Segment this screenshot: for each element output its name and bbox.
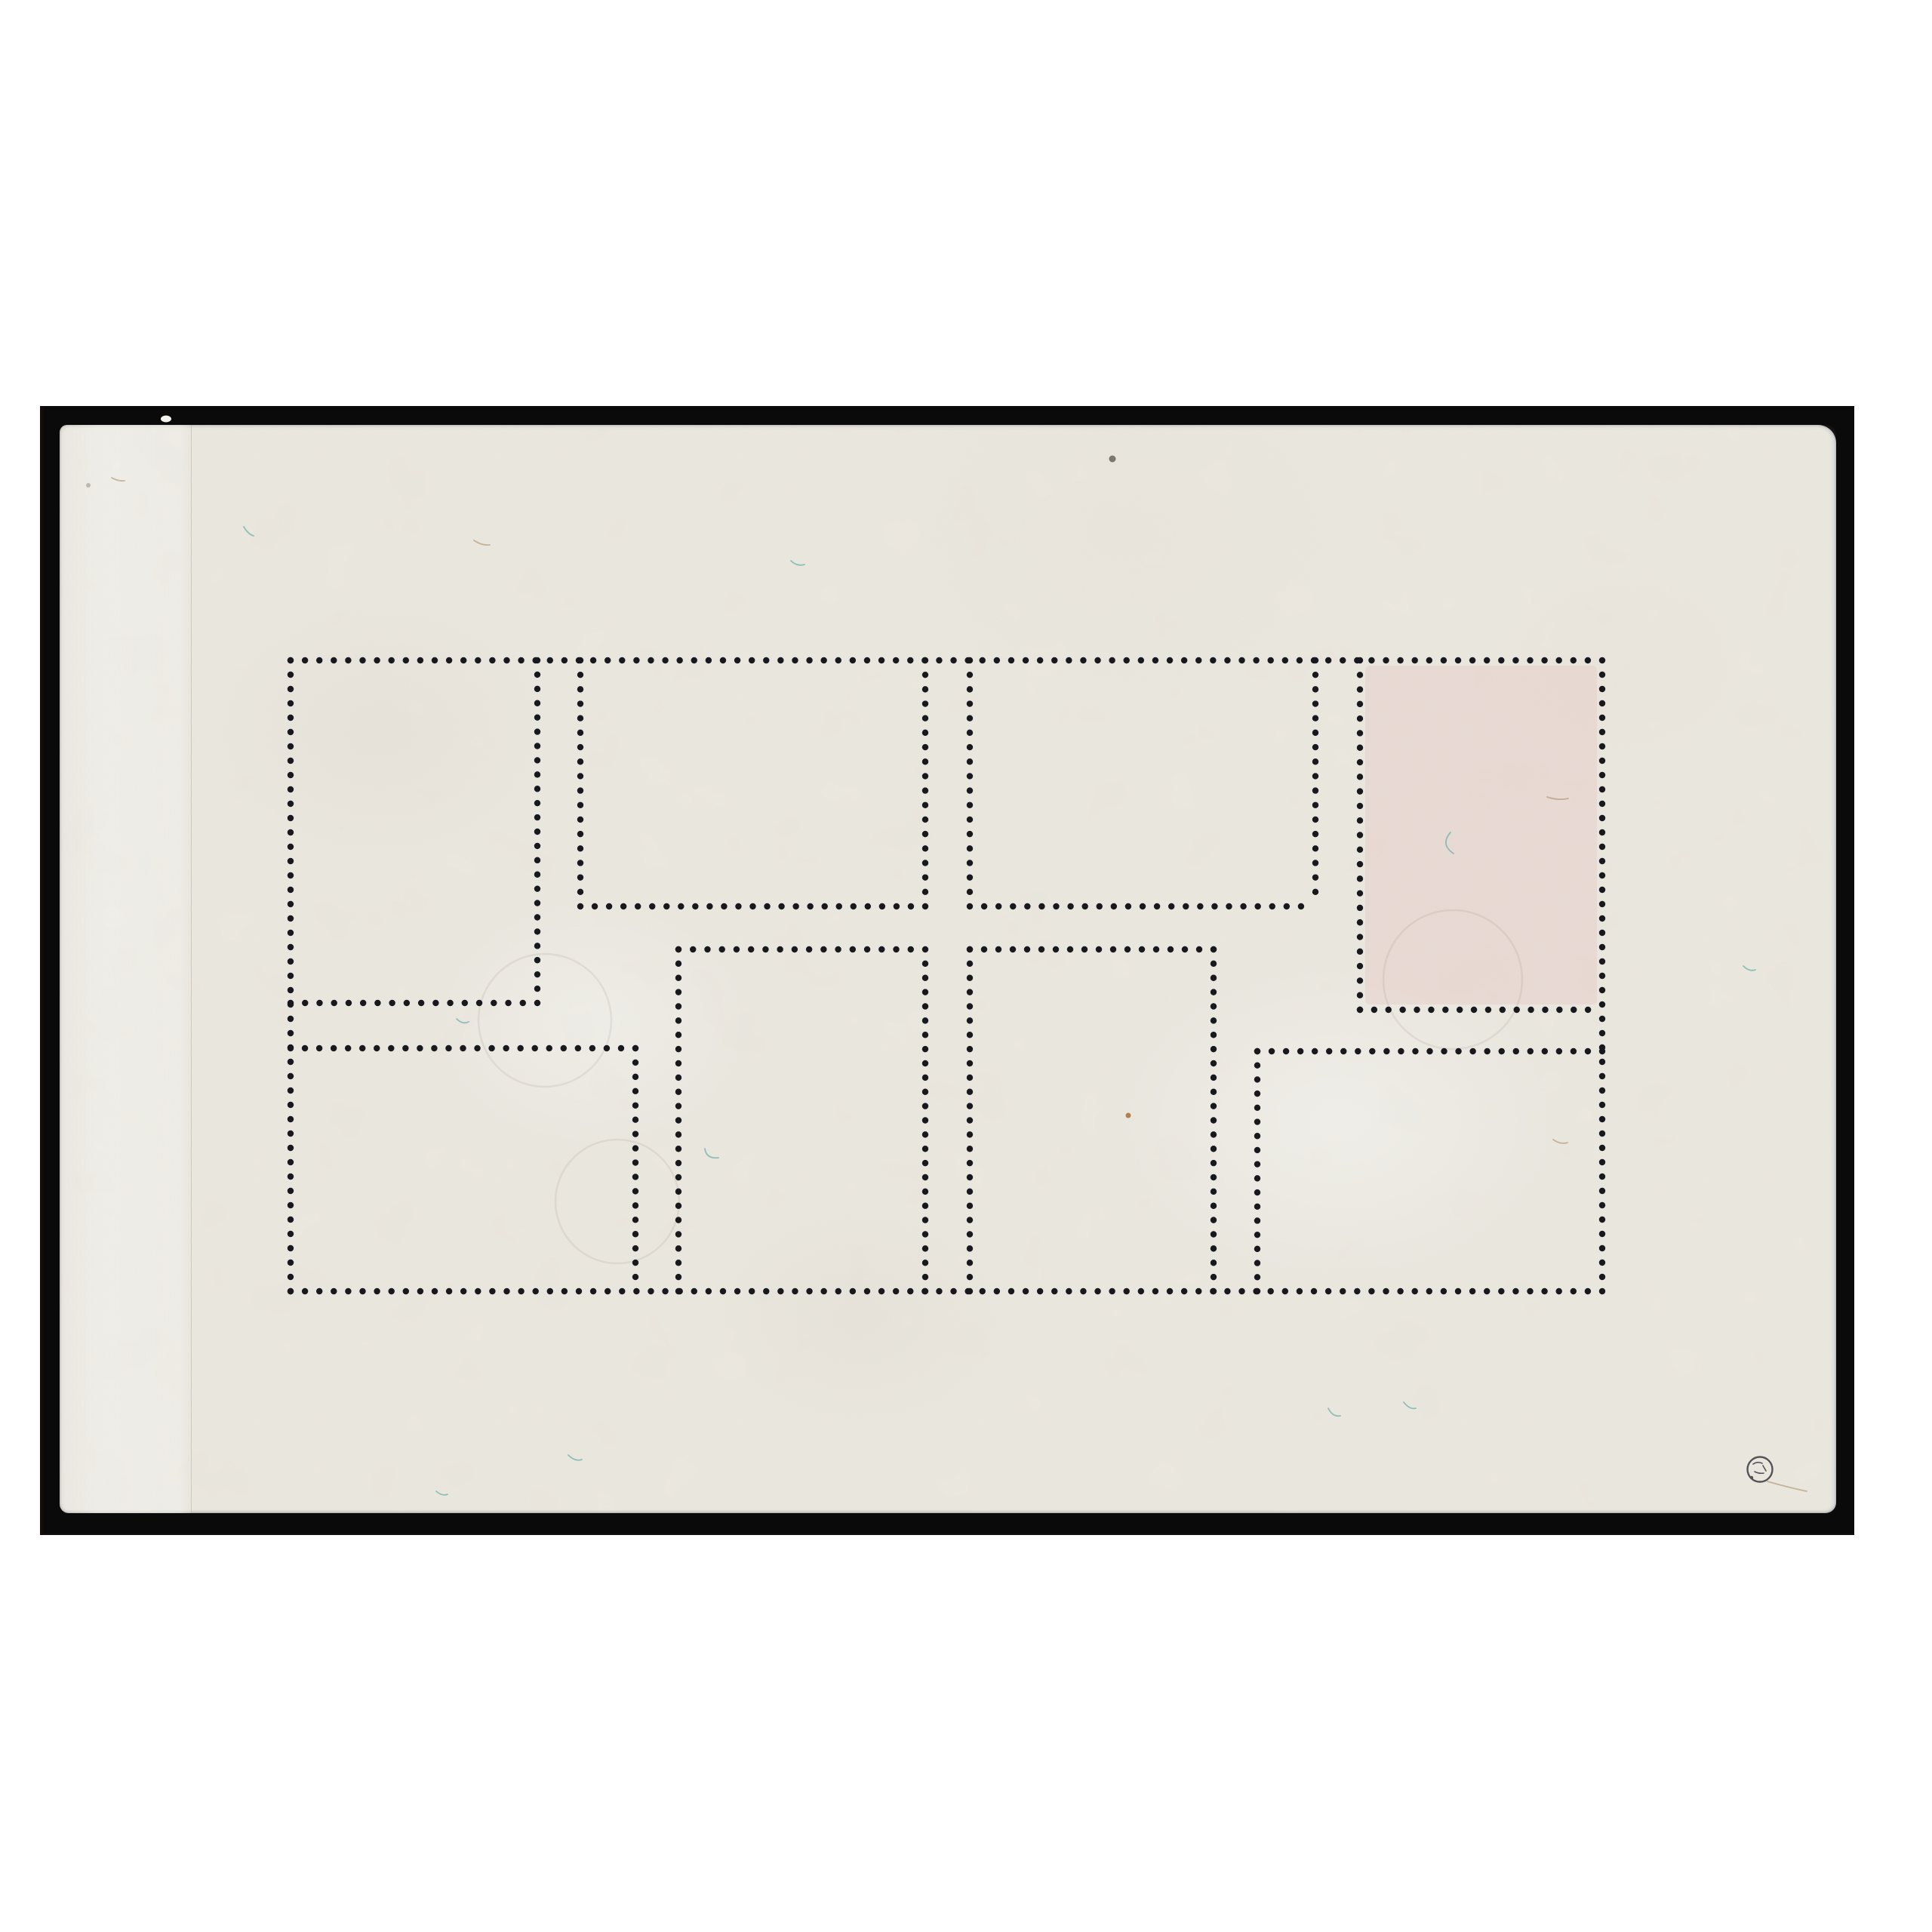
- souvenir-sheet-back: [60, 425, 1836, 1513]
- left-selvage-band: [60, 425, 192, 1513]
- scan-background: [0, 0, 1932, 1932]
